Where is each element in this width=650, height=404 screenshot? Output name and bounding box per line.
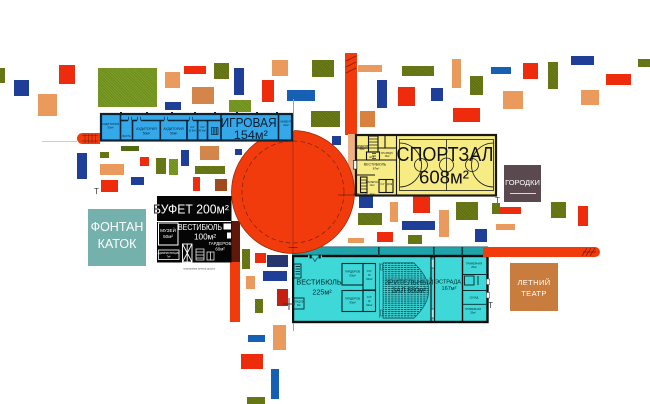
- svg-text:М 5м²: М 5м²: [199, 128, 206, 132]
- svg-text:ГРИМЕРНАЯ: ГРИМЕРНАЯ: [466, 262, 482, 266]
- svg-text:50м²: 50м²: [163, 234, 173, 239]
- svg-text:30м²: 30м²: [359, 148, 364, 151]
- svg-text:32м²: 32м²: [366, 277, 372, 281]
- svg-text:ИНВЕНТ.: ИНВЕНТ.: [280, 120, 291, 124]
- svg-text:8м²: 8м²: [297, 304, 301, 307]
- svg-text:60м²: 60м²: [215, 247, 225, 252]
- svg-text:12м²: 12м²: [369, 184, 374, 187]
- svg-text:ЭСТРАДА: ЭСТРАДА: [435, 280, 461, 286]
- svg-text:СПОРТЗАЛ: СПОРТЗАЛ: [397, 144, 494, 166]
- svg-text:ИНВЕНТАРН. 10м²: ИНВЕНТАРН. 10м²: [353, 193, 374, 196]
- svg-text:50м²: 50м²: [108, 126, 114, 130]
- svg-text:25м²: 25м²: [470, 311, 476, 315]
- svg-text:ВАХТА: ВАХТА: [122, 134, 131, 138]
- svg-text:ВЕСТИБЮЛЬ: ВЕСТИБЮЛЬ: [178, 223, 222, 232]
- svg-text:БУФЕТ 200м²: БУФЕТ 200м²: [153, 203, 229, 217]
- svg-text:МУЗЕЙ: МУЗЕЙ: [160, 226, 176, 233]
- svg-text:10м²: 10м²: [283, 123, 289, 127]
- svg-text:50м²: 50м²: [143, 132, 151, 136]
- svg-text:С/У: С/У: [200, 125, 205, 129]
- svg-text:ГРИМЕРНАЯ: ГРИМЕРНАЯ: [465, 307, 481, 311]
- svg-text:608м²: 608м²: [419, 167, 469, 188]
- svg-text:С/У: С/У: [190, 125, 195, 129]
- svg-text:50м²: 50м²: [170, 132, 178, 136]
- svg-text:15м²: 15м²: [384, 155, 389, 158]
- svg-text:Ж 5м²: Ж 5м²: [189, 128, 196, 132]
- svg-text:93м²: 93м²: [349, 301, 355, 305]
- svg-text:167м²: 167м²: [441, 286, 456, 292]
- svg-text:32м²: 32м²: [366, 303, 372, 307]
- svg-text:АУДИТОРИЯ: АУДИТОРИЯ: [163, 127, 184, 131]
- svg-text:93м²: 93м²: [349, 274, 355, 278]
- svg-text:ГАРДЕРОБ: ГАРДЕРОБ: [209, 241, 232, 246]
- svg-text:ЗАЛ 550м²: ЗАЛ 550м²: [392, 288, 427, 295]
- svg-text:ДУШ: ДУШ: [387, 183, 392, 186]
- svg-text:87м²: 87м²: [373, 167, 379, 171]
- svg-text:ВЕСТИБЮЛЬ: ВЕСТИБЮЛЬ: [296, 278, 341, 287]
- svg-text:ЗРИТЕЛЬНЫЙ: ЗРИТЕЛЬНЫЙ: [385, 278, 433, 287]
- svg-text:225м²: 225м²: [312, 287, 332, 296]
- svg-text:АУДИТОРИЯ: АУДИТОРИЯ: [136, 127, 157, 131]
- svg-text:154м²: 154м²: [234, 128, 268, 142]
- svg-text:ЕГЗ: ЕГЗ: [370, 155, 375, 159]
- svg-text:С/У: С/У: [381, 183, 385, 186]
- svg-text:СКЛАД: СКЛАД: [470, 296, 479, 300]
- svg-text:25м²: 25м²: [471, 265, 477, 269]
- svg-text:7м²: 7м²: [167, 255, 171, 258]
- svg-text:планировка центра досуга: планировка центра досуга: [183, 268, 215, 271]
